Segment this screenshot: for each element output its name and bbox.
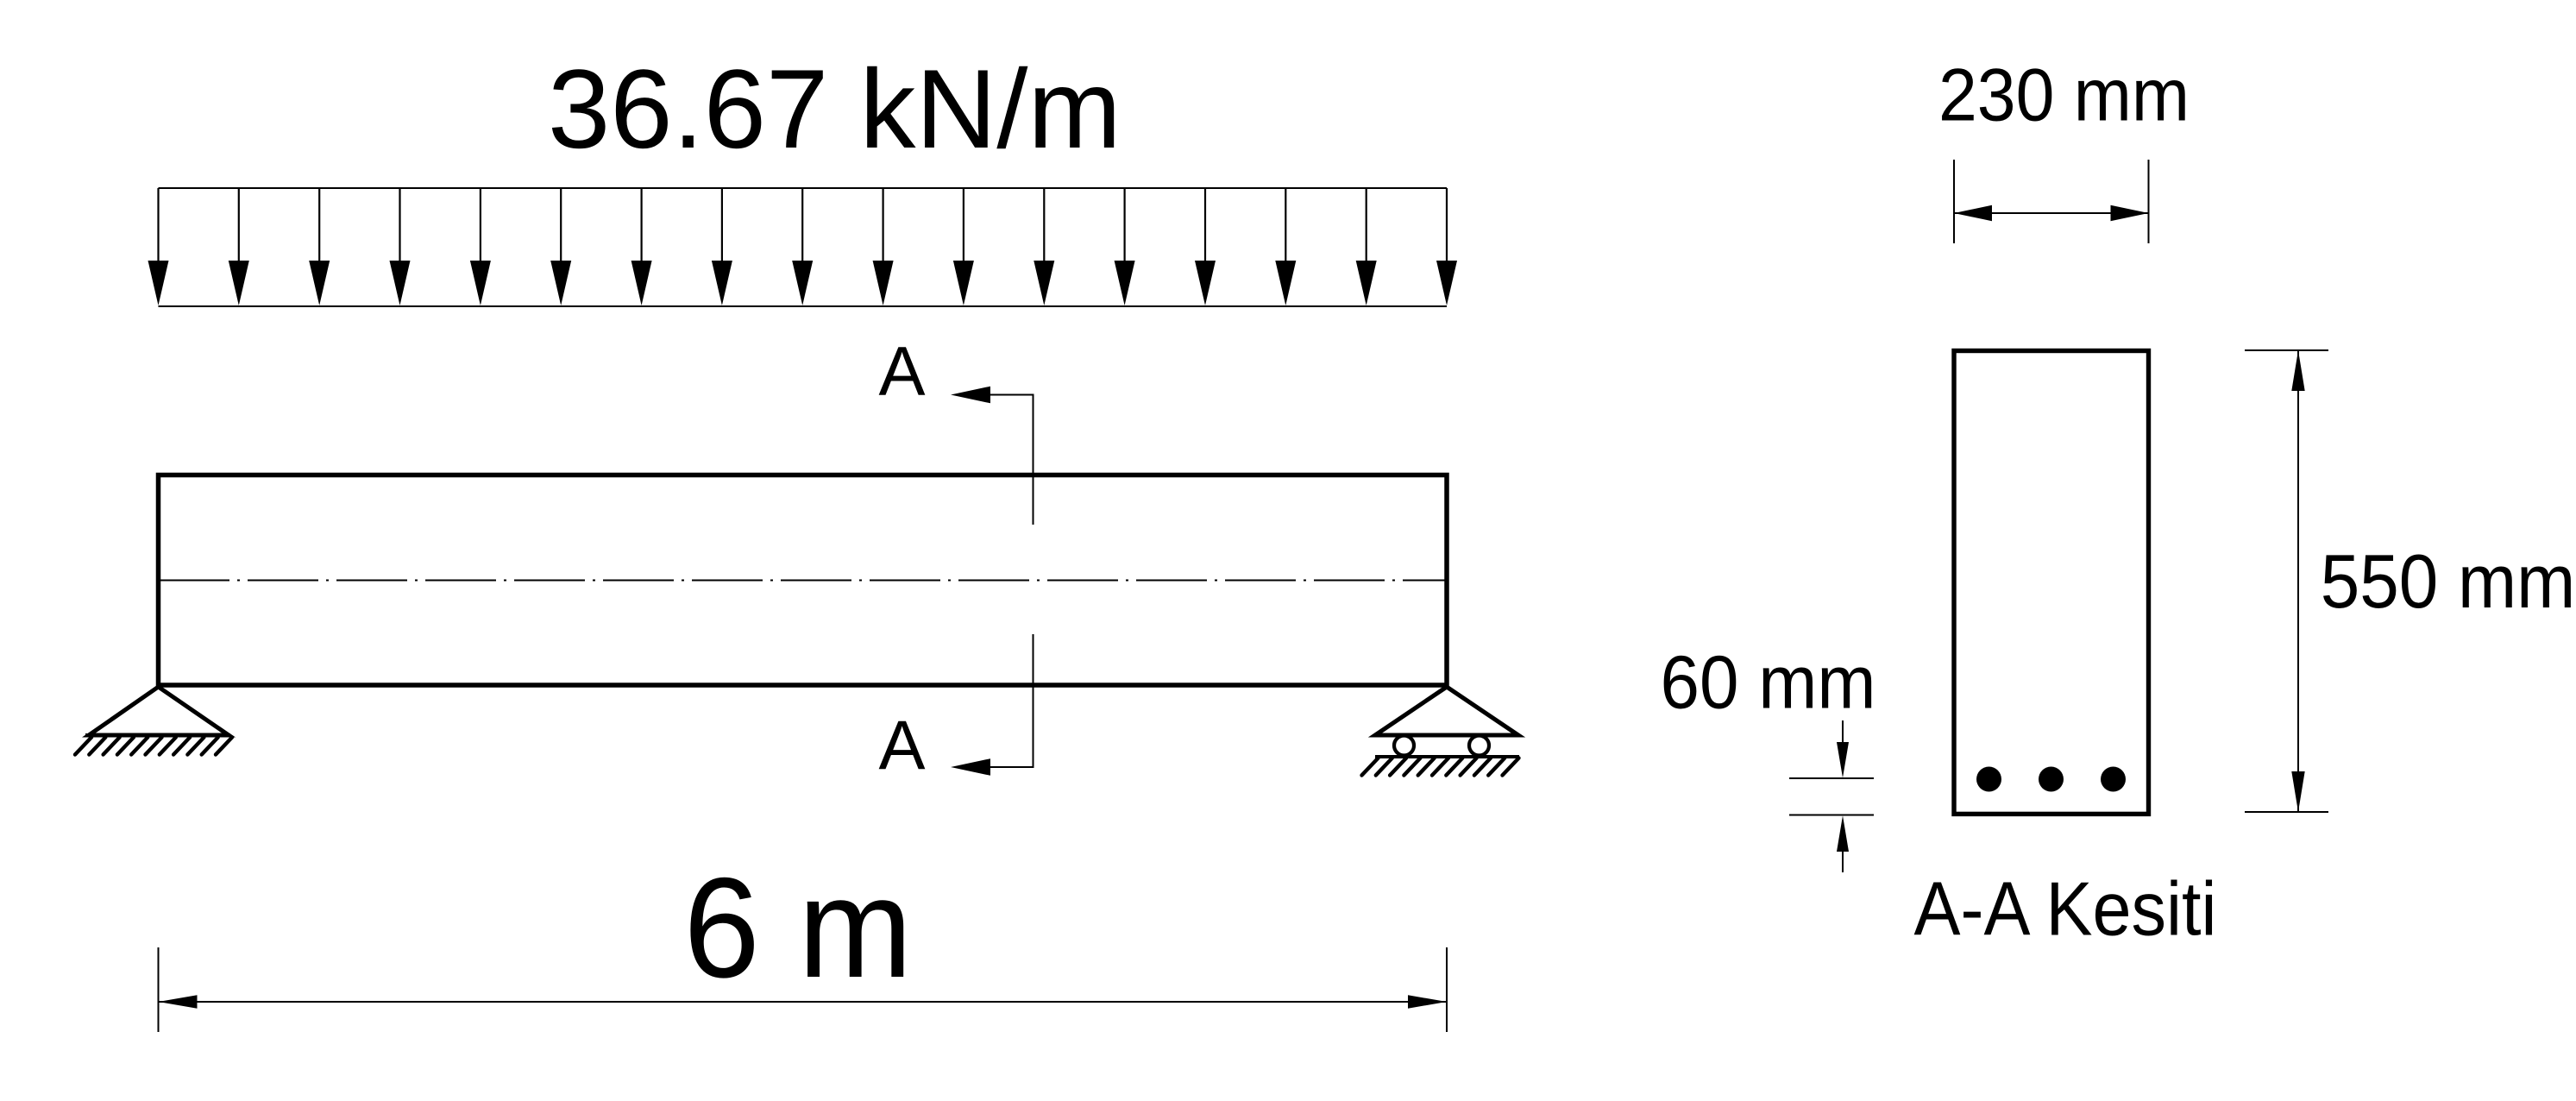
svg-text:36.67 kN/m: 36.67 kN/m (548, 46, 1122, 172)
svg-text:60 mm: 60 mm (1661, 640, 1876, 724)
svg-text:6 m: 6 m (683, 848, 912, 1007)
svg-text:A-A Kesiti: A-A Kesiti (1914, 865, 2217, 951)
svg-text:A: A (879, 333, 926, 411)
svg-text:550 mm: 550 mm (2321, 539, 2576, 624)
svg-text:230 mm: 230 mm (1938, 53, 2190, 136)
svg-text:A: A (879, 708, 926, 785)
